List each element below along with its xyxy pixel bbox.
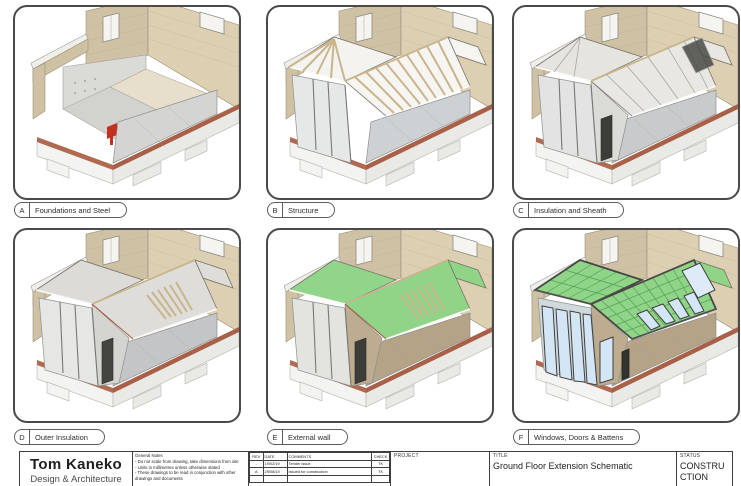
revision-row-empty: [250, 475, 390, 483]
title-block: Tom Kaneko Design & Architecture General…: [19, 451, 733, 486]
panel-f-windows: [512, 228, 740, 423]
drawing-title-cell: TITLE Ground Floor Extension Schematic: [490, 452, 677, 486]
panel-label-text: Windows, Doors & Battens: [529, 430, 639, 444]
firm-tagline: Design & Architecture: [30, 474, 121, 485]
drawing-d: [15, 230, 239, 421]
status-cell: STATUS CONSTRUCTION: [677, 452, 731, 486]
title-label: TITLE: [493, 453, 673, 459]
panel-label-text: Foundations and Steel: [30, 203, 126, 217]
revision-row: - 19/02/19 Tender issue TK: [250, 460, 390, 468]
firm-name: Tom Kaneko: [30, 456, 122, 473]
drawing-e: [268, 230, 492, 421]
note-line: - These drawings to be read in conjuncti…: [135, 470, 246, 481]
firm-logo-cell: Tom Kaneko Design & Architecture: [20, 452, 133, 486]
panel-letter: D: [15, 430, 30, 444]
panel-letter: A: [15, 203, 30, 217]
panel-label-a: A Foundations and Steel: [14, 202, 127, 218]
panel-a-foundations: [13, 5, 241, 200]
panel-letter: B: [268, 203, 283, 217]
check-header: CHECK: [372, 453, 390, 461]
panel-letter: E: [268, 430, 283, 444]
status-value: CONSTRUCTION: [680, 461, 728, 484]
panel-label-text: Structure: [283, 203, 334, 217]
panel-label-e: E External wall: [267, 429, 348, 445]
rev-header: REV: [250, 453, 264, 461]
panel-c-insulation: [512, 5, 740, 200]
panel-e-external-wall: [266, 228, 494, 423]
architectural-drawing-sheet: A Foundations and Steel B Structure C In…: [0, 0, 741, 486]
panel-label-text: Outer Insulation: [30, 430, 104, 444]
panel-label-f: F Windows, Doors & Battens: [513, 429, 640, 445]
drawing-b: [268, 7, 492, 198]
panel-letter: F: [514, 430, 529, 444]
note-line: - Do not scale from drawing, take dimens…: [135, 459, 246, 465]
panel-b-structure: [266, 5, 494, 200]
panel-label-text: External wall: [283, 430, 347, 444]
project-label: PROJECT: [394, 453, 486, 459]
panel-label-text: Insulation and Sheath: [529, 203, 623, 217]
revision-row: A 29/08/19 Issued for construction TK: [250, 468, 390, 476]
panel-label-d: D Outer Insulation: [14, 429, 105, 445]
revision-table-cell: REV DATE COMMENTS CHECK - 19/02/19 Tende…: [249, 452, 391, 486]
comments-header: COMMENTS: [287, 453, 372, 461]
panel-d-outer-insulation: [13, 228, 241, 423]
drawing-a: [15, 7, 239, 198]
status-label: STATUS: [680, 453, 728, 459]
panel-label-b: B Structure: [267, 202, 335, 218]
drawing-c: [514, 7, 738, 198]
general-notes-cell: General Notes - Do not scale from drawin…: [133, 452, 249, 486]
revision-table: REV DATE COMMENTS CHECK - 19/02/19 Tende…: [249, 452, 390, 483]
drawing-f: [514, 230, 738, 421]
panel-letter: C: [514, 203, 529, 217]
date-header: DATE: [263, 453, 287, 461]
drawing-title-value: Ground Floor Extension Schematic: [493, 461, 673, 471]
notes-heading: General Notes: [135, 453, 246, 459]
project-cell: PROJECT Dangan Road Extensions: [391, 452, 490, 486]
panel-label-c: C Insulation and Sheath: [513, 202, 624, 218]
